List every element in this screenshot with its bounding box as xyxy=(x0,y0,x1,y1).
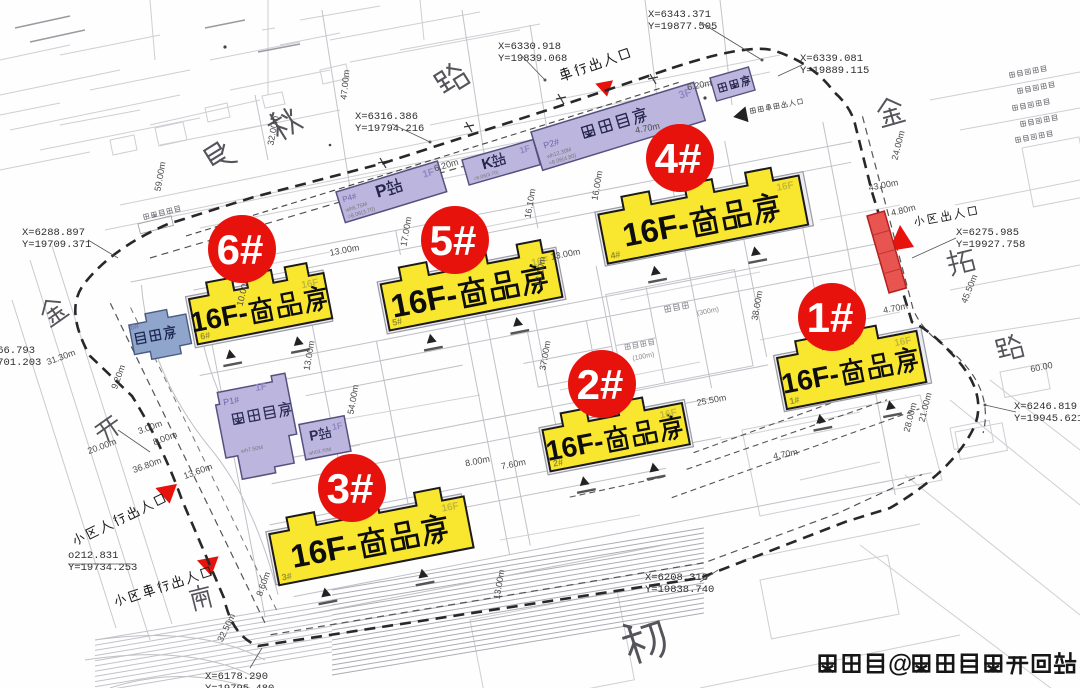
svg-text:2#: 2# xyxy=(552,457,564,469)
svg-text:Y=19839.068: Y=19839.068 xyxy=(498,53,567,65)
svg-text:Y=19794.216: Y=19794.216 xyxy=(355,123,424,135)
svg-text:1#: 1# xyxy=(807,294,854,341)
svg-text:3#: 3# xyxy=(281,571,293,583)
svg-text:6#: 6# xyxy=(199,330,211,342)
svg-text:X=6316.386: X=6316.386 xyxy=(355,111,418,123)
svg-text:5#: 5# xyxy=(391,316,403,328)
svg-text:X=6330.918: X=6330.918 xyxy=(498,41,561,53)
svg-text:5#: 5# xyxy=(430,217,477,264)
svg-text:X=6288.897: X=6288.897 xyxy=(22,227,85,239)
svg-text:X=6266.793: X=6266.793 xyxy=(0,345,35,357)
svg-text:6#: 6# xyxy=(217,226,264,273)
svg-text:Y=19877.505: Y=19877.505 xyxy=(648,21,717,33)
svg-text:1#: 1# xyxy=(789,395,801,407)
svg-text:X=6178.290: X=6178.290 xyxy=(205,671,268,683)
svg-text:@: @ xyxy=(888,651,912,678)
svg-text:Y=19945.621: Y=19945.621 xyxy=(1014,413,1080,425)
svg-text:o212.831: o212.831 xyxy=(68,550,118,562)
svg-text:4#: 4# xyxy=(610,249,622,261)
svg-text:Y=19701.203: Y=19701.203 xyxy=(0,357,41,369)
svg-text:Y=19709.371: Y=19709.371 xyxy=(22,239,91,251)
svg-text:X=6343.371: X=6343.371 xyxy=(648,9,711,21)
svg-text:X=6275.985: X=6275.985 xyxy=(956,227,1019,239)
svg-text:X=6339.081: X=6339.081 xyxy=(800,53,863,65)
svg-text:Y=19889.115: Y=19889.115 xyxy=(800,65,869,77)
svg-text:Y=19795.480: Y=19795.480 xyxy=(205,683,274,688)
svg-text:Y=19927.758: Y=19927.758 xyxy=(956,239,1025,251)
svg-text:2#: 2# xyxy=(577,361,624,408)
svg-text:3#: 3# xyxy=(327,465,374,512)
svg-text:Y=19838.740: Y=19838.740 xyxy=(645,584,714,596)
svg-text:X=6246.819: X=6246.819 xyxy=(1014,401,1077,413)
svg-text:1F: 1F xyxy=(254,381,268,394)
svg-text:X=6208.313: X=6208.313 xyxy=(645,572,708,584)
svg-text:4#: 4# xyxy=(655,135,702,182)
